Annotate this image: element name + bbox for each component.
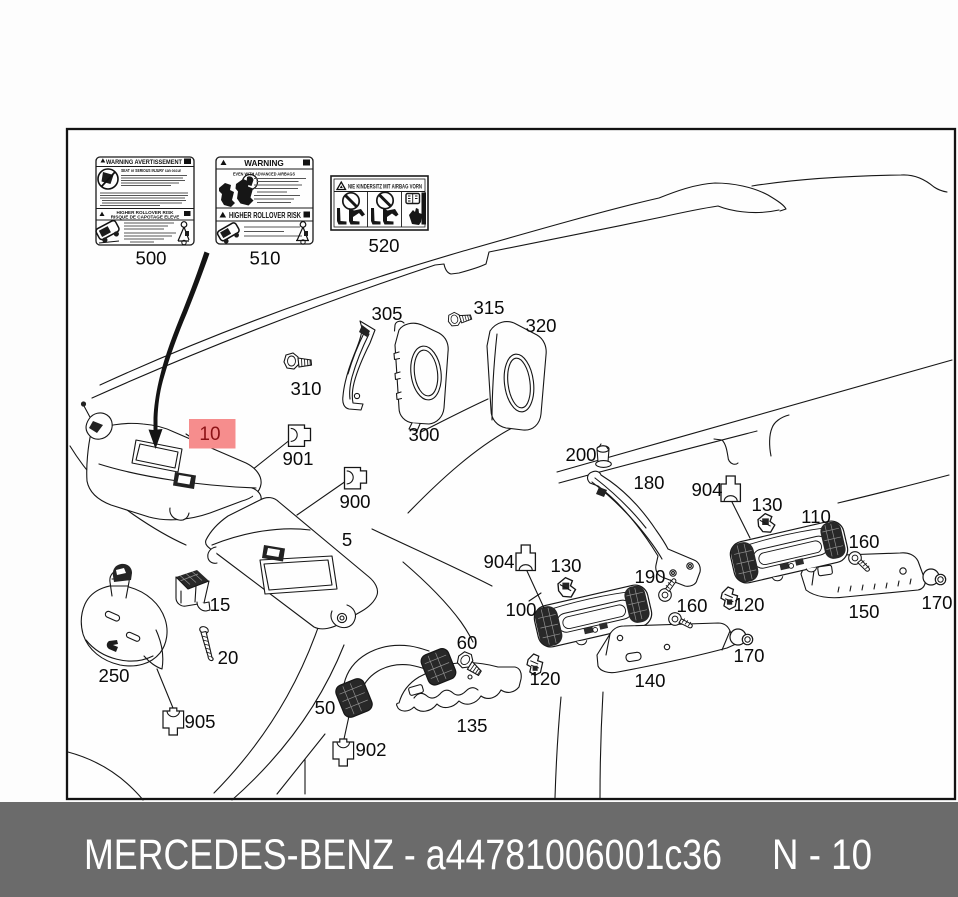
svg-text:5: 5 — [342, 529, 352, 550]
svg-text:HIGHER ROLLOVER RISK: HIGHER ROLLOVER RISK — [229, 211, 301, 220]
svg-text:10: 10 — [199, 424, 220, 445]
svg-text:901: 901 — [282, 448, 313, 469]
svg-text:MERCEDES-BENZ - a44781006001c3: MERCEDES-BENZ - a44781006001c36 — [84, 831, 722, 879]
svg-text:N - 10: N - 10 — [772, 831, 872, 879]
svg-text:900: 900 — [339, 491, 370, 512]
svg-text:100: 100 — [505, 599, 536, 620]
svg-text:160: 160 — [848, 531, 879, 552]
svg-text:320: 320 — [525, 315, 556, 336]
svg-text:EVEN WITH ADVANCED AIRBAGS: EVEN WITH ADVANCED AIRBAGS — [233, 172, 296, 178]
svg-text:WARNING: WARNING — [244, 159, 284, 168]
svg-text:15: 15 — [210, 594, 231, 615]
svg-text:170: 170 — [921, 592, 952, 613]
svg-text:520: 520 — [368, 235, 399, 256]
svg-text:120: 120 — [529, 668, 560, 689]
svg-text:180: 180 — [633, 472, 664, 493]
svg-text:250: 250 — [98, 665, 129, 686]
svg-text:200: 200 — [565, 444, 596, 465]
svg-text:500: 500 — [135, 248, 166, 269]
svg-text:130: 130 — [550, 555, 581, 576]
svg-text:130: 130 — [751, 494, 782, 515]
svg-text:904: 904 — [691, 479, 722, 500]
svg-text:SEAT or SERIOUS INJURY can occ: SEAT or SERIOUS INJURY can occur — [121, 168, 181, 173]
svg-text:160: 160 — [676, 595, 707, 616]
svg-text:300: 300 — [408, 424, 439, 445]
svg-text:150: 150 — [848, 601, 879, 622]
svg-text:120: 120 — [733, 594, 764, 615]
svg-text:60: 60 — [457, 632, 478, 653]
svg-text:140: 140 — [634, 670, 665, 691]
svg-text:190: 190 — [634, 566, 665, 587]
svg-text:305: 305 — [371, 303, 402, 324]
svg-text:310: 310 — [290, 378, 321, 399]
svg-text:170: 170 — [733, 645, 764, 666]
svg-text:135: 135 — [456, 715, 487, 736]
svg-text:315: 315 — [473, 297, 504, 318]
svg-text:904: 904 — [483, 551, 514, 572]
svg-text:50: 50 — [315, 697, 336, 718]
svg-text:NIE KINDERSITZ MIT AIRBAG VORN: NIE KINDERSITZ MIT AIRBAG VORN — [348, 185, 422, 191]
svg-text:905: 905 — [184, 711, 215, 732]
svg-text:20: 20 — [218, 647, 239, 668]
svg-text:WARNING AVERTISSEMENT: WARNING AVERTISSEMENT — [106, 159, 182, 166]
svg-text:110: 110 — [801, 506, 831, 527]
svg-text:510: 510 — [249, 248, 280, 269]
svg-text:RISQUE DE CAPOTAGE ELEVE: RISQUE DE CAPOTAGE ELEVE — [111, 215, 180, 220]
svg-text:902: 902 — [355, 739, 386, 760]
